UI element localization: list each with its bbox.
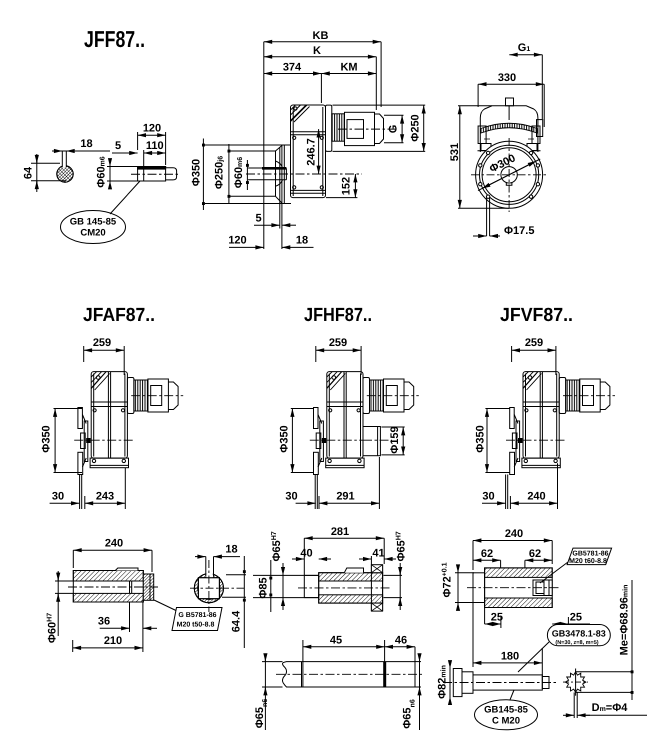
svg-text:120: 120 xyxy=(143,123,161,135)
svg-text:64.4: 64.4 xyxy=(231,610,243,632)
svg-text:5: 5 xyxy=(255,213,261,225)
svg-text:K: K xyxy=(313,45,321,57)
svg-text:JFAF87..: JFAF87.. xyxy=(83,305,155,326)
svg-text:120: 120 xyxy=(228,235,246,247)
svg-text:30: 30 xyxy=(482,491,494,503)
svg-text:40: 40 xyxy=(300,548,312,560)
svg-text:291: 291 xyxy=(336,491,354,503)
svg-text:GB3478.1-83: GB3478.1-83 xyxy=(552,629,606,639)
svg-text:CM20: CM20 xyxy=(80,228,105,239)
svg-text:G: G xyxy=(388,125,400,134)
svg-text:KB: KB xyxy=(313,30,329,42)
svg-text:18: 18 xyxy=(80,138,92,150)
svg-text:GB 145-85: GB 145-85 xyxy=(70,217,117,228)
svg-text:Φ17.5: Φ17.5 xyxy=(504,225,534,237)
svg-text:259: 259 xyxy=(525,337,543,349)
svg-text:18: 18 xyxy=(225,544,237,556)
svg-text:281: 281 xyxy=(331,526,349,538)
svg-text:62: 62 xyxy=(481,548,493,560)
svg-text:(N=30, z=8, m=5): (N=30, z=8, m=5) xyxy=(555,640,598,646)
svg-text:30: 30 xyxy=(285,491,297,503)
svg-text:25: 25 xyxy=(570,612,582,624)
svg-text:Φ350: Φ350 xyxy=(191,159,203,186)
svg-text:Φ159: Φ159 xyxy=(389,426,401,453)
svg-text:240: 240 xyxy=(105,538,123,550)
svg-text:KM: KM xyxy=(340,62,357,74)
svg-text:246.7: 246.7 xyxy=(306,138,318,166)
svg-text:374: 374 xyxy=(283,62,302,74)
svg-text:GB5781-86: GB5781-86 xyxy=(572,551,608,558)
svg-text:64: 64 xyxy=(23,166,35,179)
svg-text:Dm=Φ4: Dm=Φ4 xyxy=(592,702,629,714)
svg-text:JFF87..: JFF87.. xyxy=(84,26,145,52)
svg-text:GB145-85: GB145-85 xyxy=(484,705,529,716)
svg-text:45: 45 xyxy=(330,634,342,646)
svg-text:5: 5 xyxy=(115,140,121,152)
svg-text:46: 46 xyxy=(395,634,407,646)
svg-text:30: 30 xyxy=(52,491,64,503)
svg-text:Φ85: Φ85 xyxy=(258,577,270,598)
svg-text:C M20: C M20 xyxy=(492,716,520,727)
svg-text:Φ250: Φ250 xyxy=(410,114,422,141)
svg-text:152: 152 xyxy=(341,177,353,195)
svg-text:210: 210 xyxy=(104,635,122,647)
svg-text:M20 t50-8.8: M20 t50-8.8 xyxy=(177,622,215,629)
svg-text:M20 t60-8.8: M20 t60-8.8 xyxy=(569,558,607,565)
svg-text:Φ350: Φ350 xyxy=(40,425,52,452)
svg-text:110: 110 xyxy=(146,140,164,152)
svg-text:JFHF87..: JFHF87.. xyxy=(304,305,372,326)
svg-text:G B5781-86: G B5781-86 xyxy=(178,612,216,619)
svg-text:259: 259 xyxy=(93,337,111,349)
svg-text:330: 330 xyxy=(498,72,516,84)
svg-text:Φ350: Φ350 xyxy=(278,425,290,452)
svg-text:18: 18 xyxy=(296,235,308,247)
svg-text:180: 180 xyxy=(501,651,519,663)
svg-text:25: 25 xyxy=(491,612,503,624)
svg-text:JFVF87..: JFVF87.. xyxy=(500,305,573,326)
svg-text:41: 41 xyxy=(372,548,384,560)
svg-text:259: 259 xyxy=(329,337,347,349)
svg-text:36: 36 xyxy=(98,616,110,628)
svg-text:531: 531 xyxy=(449,143,461,161)
svg-text:240: 240 xyxy=(505,528,523,540)
svg-text:62: 62 xyxy=(529,548,541,560)
svg-text:240: 240 xyxy=(527,491,545,503)
svg-text:Φ350: Φ350 xyxy=(475,425,487,452)
svg-text:243: 243 xyxy=(96,491,114,503)
